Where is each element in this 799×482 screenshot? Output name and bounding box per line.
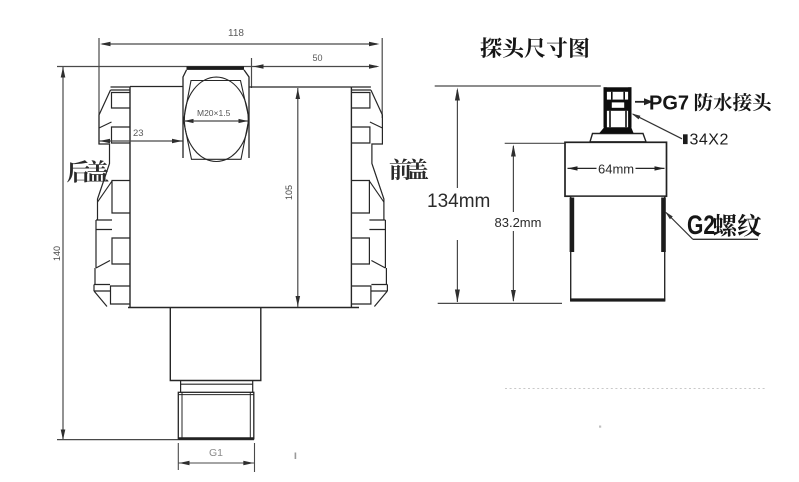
- svg-text:105: 105: [284, 185, 294, 200]
- svg-text:50: 50: [313, 53, 323, 63]
- svg-text:64mm: 64mm: [598, 162, 634, 177]
- svg-text:34X2: 34X2: [690, 132, 729, 149]
- svg-text:83.2mm: 83.2mm: [495, 215, 542, 230]
- svg-text:M20×1.5: M20×1.5: [197, 108, 231, 118]
- svg-text:G1: G1: [209, 447, 223, 459]
- svg-text:118: 118: [228, 28, 244, 39]
- svg-text:140: 140: [52, 246, 62, 261]
- svg-text:23: 23: [133, 128, 144, 139]
- svg-text:134mm: 134mm: [427, 191, 490, 212]
- svg-text:PG7: PG7: [649, 93, 689, 115]
- svg-text:G2: G2: [687, 211, 715, 241]
